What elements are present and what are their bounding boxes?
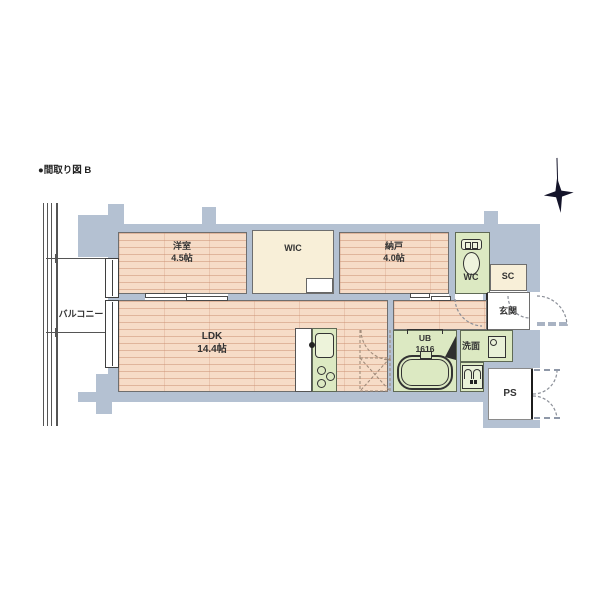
floor-plan: ●間取り図 B バルコニー bbox=[0, 0, 600, 600]
ub-door-wedge bbox=[445, 336, 456, 360]
ps-opening-dash bbox=[534, 417, 560, 419]
room-label-senmen: 洗面 bbox=[462, 341, 480, 353]
wc-door-arc bbox=[455, 299, 482, 326]
fridge-door-arc bbox=[361, 330, 391, 360]
room-label-ps: PS bbox=[503, 387, 516, 400]
room-label-wic: WIC bbox=[284, 243, 302, 255]
entrance-door-panel bbox=[537, 322, 567, 326]
room-label-genkan: 玄関 bbox=[499, 306, 517, 318]
ps-door-arc-bottom bbox=[533, 396, 557, 419]
room-label-sc: SC bbox=[502, 271, 515, 283]
ps-door-arc-top bbox=[533, 371, 557, 394]
room-label-wc: WC bbox=[464, 272, 479, 284]
room-label-ldk: LDK 14.4帖 bbox=[197, 330, 226, 356]
room-label-yoshitsu: 洋室 4.5帖 bbox=[171, 241, 193, 264]
room-label-nando: 納戸 4.0帖 bbox=[383, 241, 405, 264]
door-swing-arcs-overlay bbox=[0, 0, 600, 600]
ps-opening-dash bbox=[534, 369, 560, 371]
room-label-ub: UB 1616 bbox=[416, 333, 435, 355]
